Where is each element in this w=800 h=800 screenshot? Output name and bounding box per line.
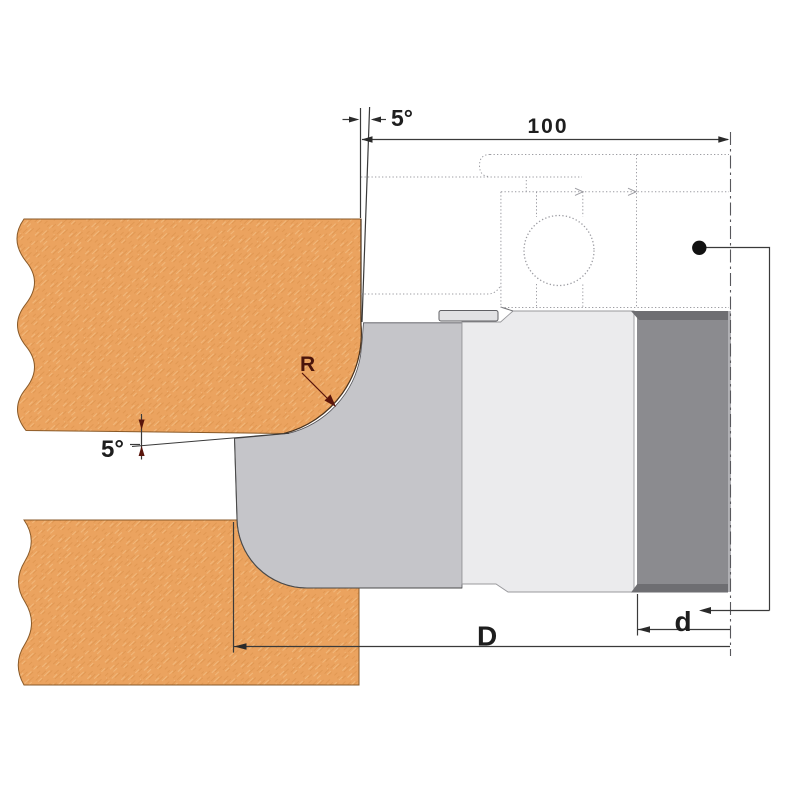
svg-text:5°: 5° — [101, 436, 124, 463]
svg-text:R: R — [300, 353, 315, 376]
svg-text:d: d — [675, 606, 692, 637]
svg-text:100: 100 — [528, 115, 569, 138]
svg-text:D: D — [477, 621, 497, 652]
svg-text:5°: 5° — [391, 105, 413, 131]
